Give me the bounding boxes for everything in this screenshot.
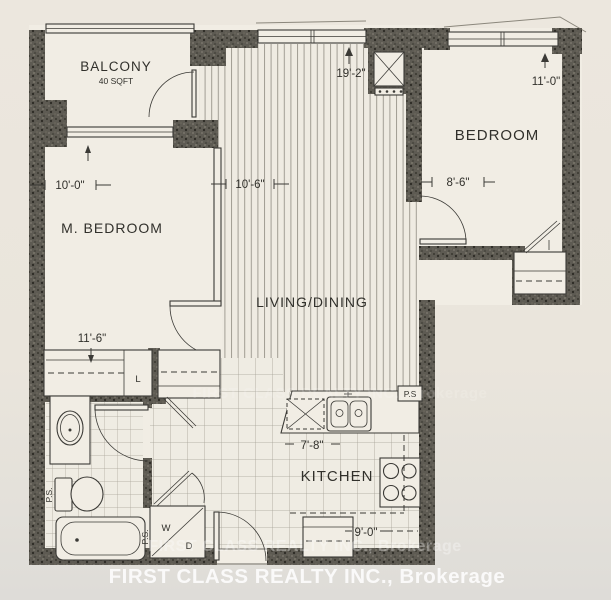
living-dining-floor (199, 44, 417, 392)
bedroom-window (448, 32, 558, 46)
master-bedroom-closet (44, 350, 152, 396)
master-bedroom-label: M. BEDROOM (61, 220, 163, 236)
bathroom-vanity-sink (50, 396, 90, 464)
watermark-main: FIRST CLASS REALTY INC., Brokerage (109, 565, 506, 588)
structural-column (374, 52, 404, 95)
linen-closet-label: L (135, 374, 140, 385)
watermark-top: FIRST CLASS REALTY INC., Brokerage (193, 385, 488, 402)
bedroom-length-dim: 11'-0" (532, 76, 560, 88)
balcony-label: BALCONY (80, 59, 152, 74)
watermark-middle: FIRST CLASS REALTY INC., Brokerage (148, 538, 461, 555)
master-bedroom-window (67, 127, 173, 137)
kitchen-label: KITCHEN (301, 468, 374, 485)
floorplan-drawing: BALCONY 40 SQFT M. BEDROOM LIVING/DINING… (0, 0, 611, 600)
living-length-dim: 19'-2" (336, 68, 365, 80)
pipe-shaft-bath-label: P.S. (44, 488, 54, 503)
balcony-railing (46, 24, 194, 33)
living-dining-label: LIVING/DINING (256, 294, 368, 310)
kitchen-counter-dim: 7'-8" (301, 440, 324, 452)
washer-label: W (162, 523, 171, 534)
balcony-area-label: 40 SQFT (99, 76, 133, 86)
kitchen-dishwasher (287, 399, 324, 429)
bathtub (56, 517, 145, 560)
bedroom-width-dim: 8'-6" (447, 177, 470, 189)
living-width-dim: 10'-6" (235, 179, 264, 191)
master-bedroom-width-dim: 10'-0" (55, 180, 84, 192)
bedroom-label: BEDROOM (455, 127, 540, 144)
toilet (55, 477, 103, 511)
living-window (258, 30, 366, 43)
kitchen-cooktop (380, 458, 420, 507)
master-bedroom-length-dim: 11'-6" (78, 333, 106, 345)
master-bedroom-partition-wall (214, 148, 221, 305)
floorplan-page: BALCONY 40 SQFT M. BEDROOM LIVING/DINING… (0, 0, 611, 600)
